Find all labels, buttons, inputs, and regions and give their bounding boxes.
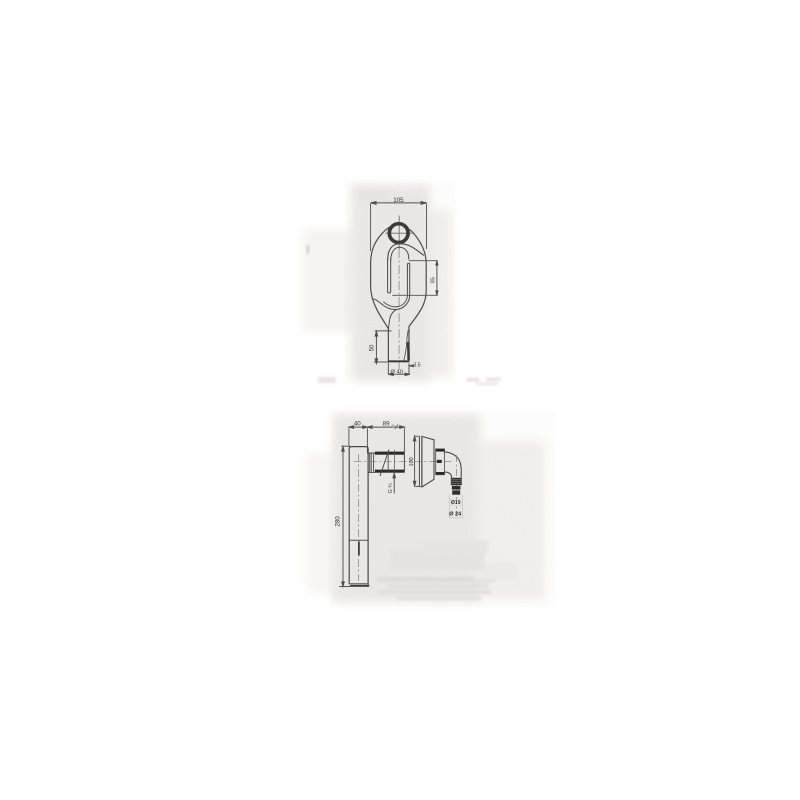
- svg-text:G ¾: G ¾: [388, 483, 394, 494]
- svg-text:105: 105: [393, 197, 404, 204]
- svg-text:Ø19: Ø19: [451, 500, 461, 506]
- svg-text:Ø 40: Ø 40: [390, 369, 403, 375]
- svg-text:3.5: 3.5: [413, 362, 420, 368]
- svg-text:89: 89: [383, 420, 390, 427]
- svg-text:40: 40: [354, 420, 361, 427]
- svg-text:280: 280: [335, 516, 342, 527]
- svg-text:85: 85: [431, 277, 437, 283]
- svg-text:100: 100: [409, 457, 415, 466]
- svg-text:50: 50: [370, 344, 376, 351]
- svg-text:Ø 24: Ø 24: [449, 512, 462, 518]
